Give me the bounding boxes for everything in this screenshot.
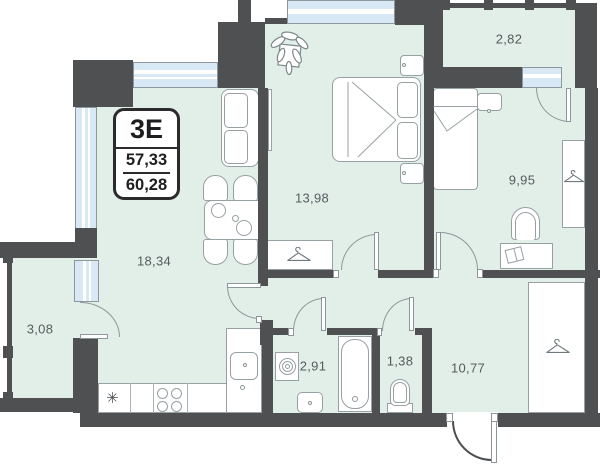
wall <box>585 88 598 427</box>
sink-drain <box>243 363 247 367</box>
desk-chair-inner <box>515 212 536 240</box>
sofa-cushion <box>224 130 248 164</box>
wardrobe-bedroom-main <box>265 240 333 270</box>
dining-chair <box>233 175 258 201</box>
nightstand-knob <box>487 109 491 113</box>
area-label-bathroom: 2,91 <box>300 359 327 374</box>
area-label-hallway: 10,77 <box>451 361 485 376</box>
door-leaf <box>227 283 261 288</box>
tv <box>268 89 272 151</box>
wardrobe-bedroom-second <box>562 140 585 228</box>
counter-divider <box>153 383 154 413</box>
balcony-glazing <box>7 258 12 398</box>
sofa-cushion <box>224 93 248 128</box>
wall <box>80 413 432 427</box>
door-jamb <box>377 328 382 336</box>
unit-badge: 3E 57,33 60,28 <box>113 108 180 200</box>
dining-chair <box>233 239 258 265</box>
stove-burner <box>157 401 168 412</box>
door-leaf <box>436 232 441 270</box>
plate <box>211 203 226 218</box>
stove-burner <box>157 388 168 399</box>
wall <box>424 0 443 88</box>
plate <box>232 215 239 222</box>
stove-burner <box>171 388 182 399</box>
unit-type: 3E <box>116 111 177 149</box>
wall <box>378 270 438 278</box>
wall <box>443 67 522 88</box>
wall <box>482 270 600 278</box>
wall <box>73 60 133 107</box>
glazing-tick <box>3 346 13 358</box>
wall <box>258 88 268 286</box>
area-label-wc: 1,38 <box>387 354 414 369</box>
glazing-tick <box>484 0 493 10</box>
dining-chair <box>203 239 228 265</box>
counter-divider <box>187 383 188 413</box>
glazing-tick <box>3 254 13 263</box>
pillow <box>397 82 418 118</box>
glazing-tick <box>566 0 576 10</box>
unit-total-area: 60,28 <box>116 174 177 197</box>
wall <box>218 22 265 88</box>
window-living-left <box>75 107 97 230</box>
nightstand-knob <box>402 63 406 67</box>
area-label-bedroom-second: 9,95 <box>509 173 536 188</box>
area-label-living-kitchen: 18,34 <box>137 254 171 269</box>
area-label-balcony-left: 3,08 <box>27 322 54 337</box>
door-jamb <box>256 316 262 323</box>
window-bedroom-main-top <box>287 0 395 24</box>
nightstand-knob <box>402 171 406 175</box>
entrance-door-leaf <box>491 418 497 463</box>
door-leaf <box>80 334 108 339</box>
plate <box>236 220 252 236</box>
wall <box>575 3 597 88</box>
door-jamb <box>433 269 439 278</box>
wall <box>265 18 287 24</box>
single-bed <box>433 88 478 190</box>
wardrobe-hallway <box>528 282 585 413</box>
toilet-bowl-inner <box>393 382 407 403</box>
door-leaf <box>566 88 571 122</box>
door-jamb <box>477 269 483 278</box>
entrance-door-arc <box>452 421 492 461</box>
dining-chair <box>203 175 228 201</box>
door-leaf <box>409 297 414 331</box>
wall <box>0 242 97 258</box>
area-label-bedroom-main: 13,98 <box>295 191 329 206</box>
door-jamb <box>288 328 294 336</box>
door-leaf <box>321 297 326 331</box>
counter-divider <box>130 383 131 413</box>
unit-living-area: 57,33 <box>123 149 170 174</box>
washer-drum <box>285 364 290 369</box>
area-label-balcony-top: 2,82 <box>496 32 523 47</box>
door-leaf <box>374 232 379 270</box>
wall <box>327 328 380 335</box>
wall <box>395 0 424 25</box>
wall <box>498 413 600 427</box>
wall <box>424 88 434 270</box>
glazing-tick <box>441 0 450 10</box>
window-balcony-left <box>74 260 99 302</box>
pillow <box>397 122 418 159</box>
window-bedroom-second-top <box>522 67 562 88</box>
window-living-top <box>133 62 218 88</box>
bathtub-drain <box>352 396 358 402</box>
floor-plan: ✳ <box>0 0 600 465</box>
faucet-dot <box>240 385 245 390</box>
door-jamb <box>333 270 339 278</box>
wall <box>372 335 380 413</box>
door-jamb <box>446 413 453 422</box>
glazing-tick <box>525 0 534 10</box>
wall <box>238 0 251 23</box>
wall <box>422 328 432 415</box>
door-jamb <box>491 413 498 422</box>
wall <box>73 338 98 413</box>
stove-burner <box>171 401 182 412</box>
wall <box>260 270 338 278</box>
balcony-glazing <box>443 3 575 8</box>
fridge-icon: ✳ <box>106 389 119 407</box>
sink-drain <box>308 401 312 405</box>
wall <box>262 345 273 413</box>
